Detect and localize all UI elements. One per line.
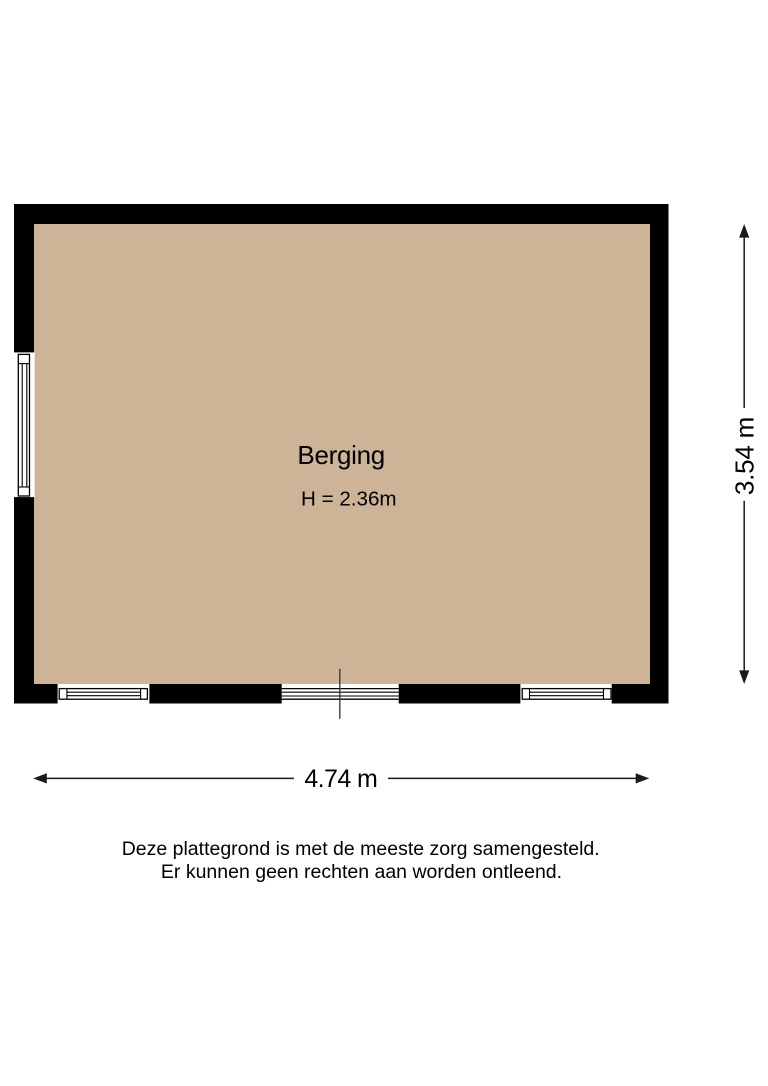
- svg-text:H = 2.36m: H = 2.36m: [301, 487, 397, 510]
- svg-text:Er kunnen geen rechten aan wor: Er kunnen geen rechten aan worden ontlee…: [161, 861, 562, 883]
- svg-text:Berging: Berging: [297, 440, 385, 470]
- svg-text:3.54 m: 3.54 m: [729, 417, 759, 495]
- svg-text:Deze plattegrond is met de mee: Deze plattegrond is met de meeste zorg s…: [122, 838, 600, 860]
- svg-text:4.74 m: 4.74 m: [304, 765, 377, 793]
